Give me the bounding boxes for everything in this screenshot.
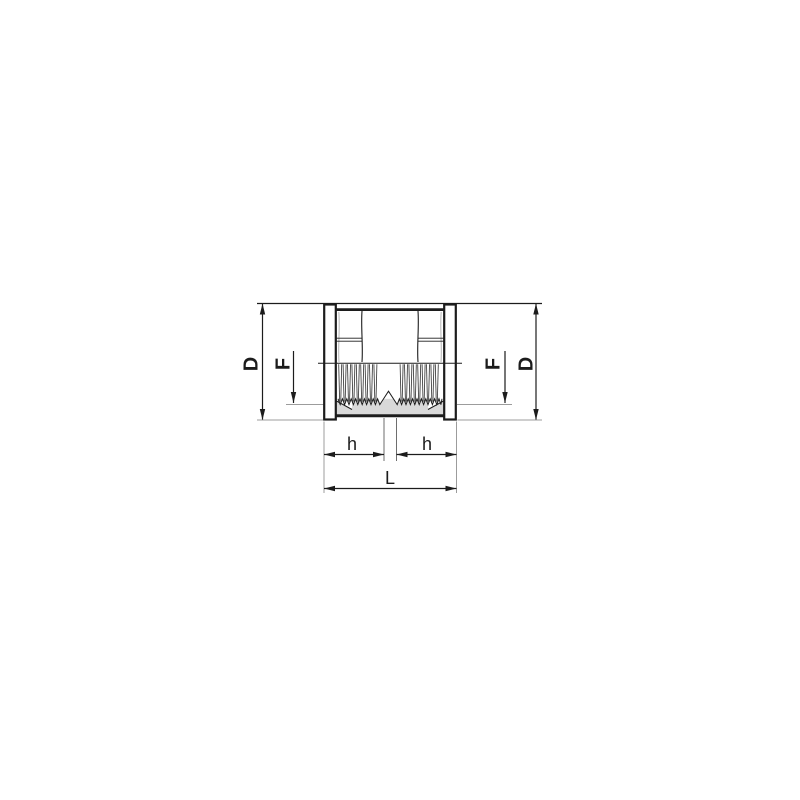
dim-label-D-right: D (516, 357, 538, 371)
fitting-body (318, 305, 462, 420)
surface-shade-left (339, 312, 340, 362)
flange-left (324, 305, 336, 420)
thread-runout-curve-left (362, 311, 363, 362)
dim-label-h-right: h (422, 434, 432, 454)
thread-runout-curve-right (418, 311, 419, 362)
technical-drawing: D F F D h h L (0, 0, 800, 800)
surface-shade-right (441, 312, 442, 362)
flange-right (444, 305, 456, 420)
drawing-canvas: D F F D h h L (0, 0, 800, 800)
dim-label-L: L (385, 468, 395, 488)
dim-label-F-right: F (483, 358, 505, 370)
dim-label-F-left: F (273, 358, 295, 370)
dim-label-D-left: D (241, 357, 263, 371)
dim-label-h-left: h (347, 434, 357, 454)
